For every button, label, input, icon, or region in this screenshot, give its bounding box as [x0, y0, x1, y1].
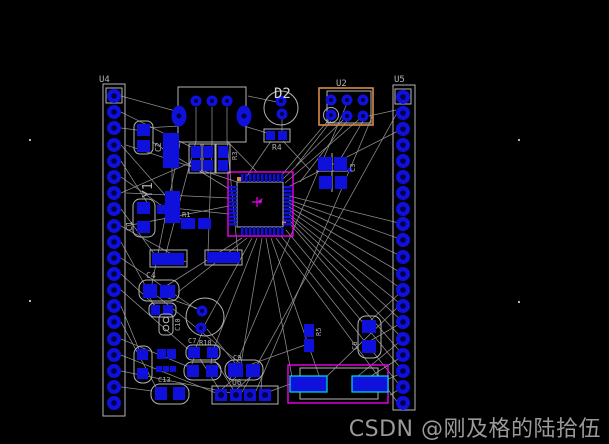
label-c3: C3 — [349, 164, 357, 172]
label-r10: R10 — [199, 339, 212, 347]
label-c6: C6 — [351, 342, 359, 350]
resistor-r4[interactable] — [264, 129, 290, 142]
label-c10: C10 — [174, 318, 182, 331]
label-r3: R3 — [231, 152, 239, 160]
ic-pins-bottom — [241, 227, 284, 235]
capacitor-c13[interactable] — [151, 384, 189, 404]
connector-u4[interactable] — [103, 84, 125, 416]
ic-pins-top — [241, 174, 284, 182]
label-c7: C7 — [188, 337, 196, 345]
connector-u5[interactable] — [393, 85, 415, 410]
pcb-layout-svg: U4 U5 U2 D2 R4 Y1 C2 C1 R3 C3 R1 C4 C10 … — [0, 0, 609, 444]
ic-origin-marker — [252, 197, 263, 207]
label-c9: C9 — [233, 354, 241, 362]
ic-pins-right — [284, 186, 292, 226]
center-ic-qfp[interactable] — [228, 172, 293, 236]
label-c2: C2 — [154, 142, 163, 152]
resistor-r5[interactable] — [304, 324, 314, 352]
label-r1: R1 — [182, 211, 190, 219]
label-c4: C4 — [146, 271, 156, 280]
label-u4: U4 — [99, 75, 110, 85]
label-c13: C13 — [158, 376, 171, 384]
header-u6[interactable] — [212, 386, 278, 404]
pcb-canvas: U4 U5 U2 D2 R4 Y1 C2 C1 R3 C3 R1 C4 C10 … — [0, 0, 609, 444]
label-c1: C1 — [125, 221, 134, 231]
label-d2: D2 — [274, 86, 291, 102]
resistor-r10[interactable] — [186, 345, 220, 360]
capacitor-c2[interactable] — [134, 121, 153, 154]
resistor-group-r3[interactable] — [189, 144, 230, 173]
component-bar-2[interactable] — [205, 250, 242, 265]
capacitor-c7[interactable] — [186, 298, 224, 336]
watermark: CSDN @刚及格的陆拾伍 — [349, 411, 601, 443]
resistor-below-r10[interactable] — [184, 362, 221, 380]
label-u5: U5 — [394, 75, 405, 85]
label-y1: Y1 — [141, 182, 156, 198]
ic-pins-left — [229, 186, 237, 226]
capacitor-c9[interactable] — [225, 360, 263, 380]
label-u2: U2 — [336, 79, 347, 89]
resistor-r1[interactable] — [181, 218, 211, 229]
capacitor-c10[interactable] — [149, 303, 176, 335]
label-u6: U6 — [232, 378, 242, 387]
label-r4: R4 — [272, 143, 282, 152]
label-r5: R5 — [315, 328, 323, 336]
bottom-edge-connector[interactable] — [288, 365, 388, 403]
top-connector[interactable] — [172, 87, 252, 142]
capacitor-c1[interactable] — [133, 199, 155, 237]
capacitor-group-c3[interactable] — [316, 153, 352, 192]
